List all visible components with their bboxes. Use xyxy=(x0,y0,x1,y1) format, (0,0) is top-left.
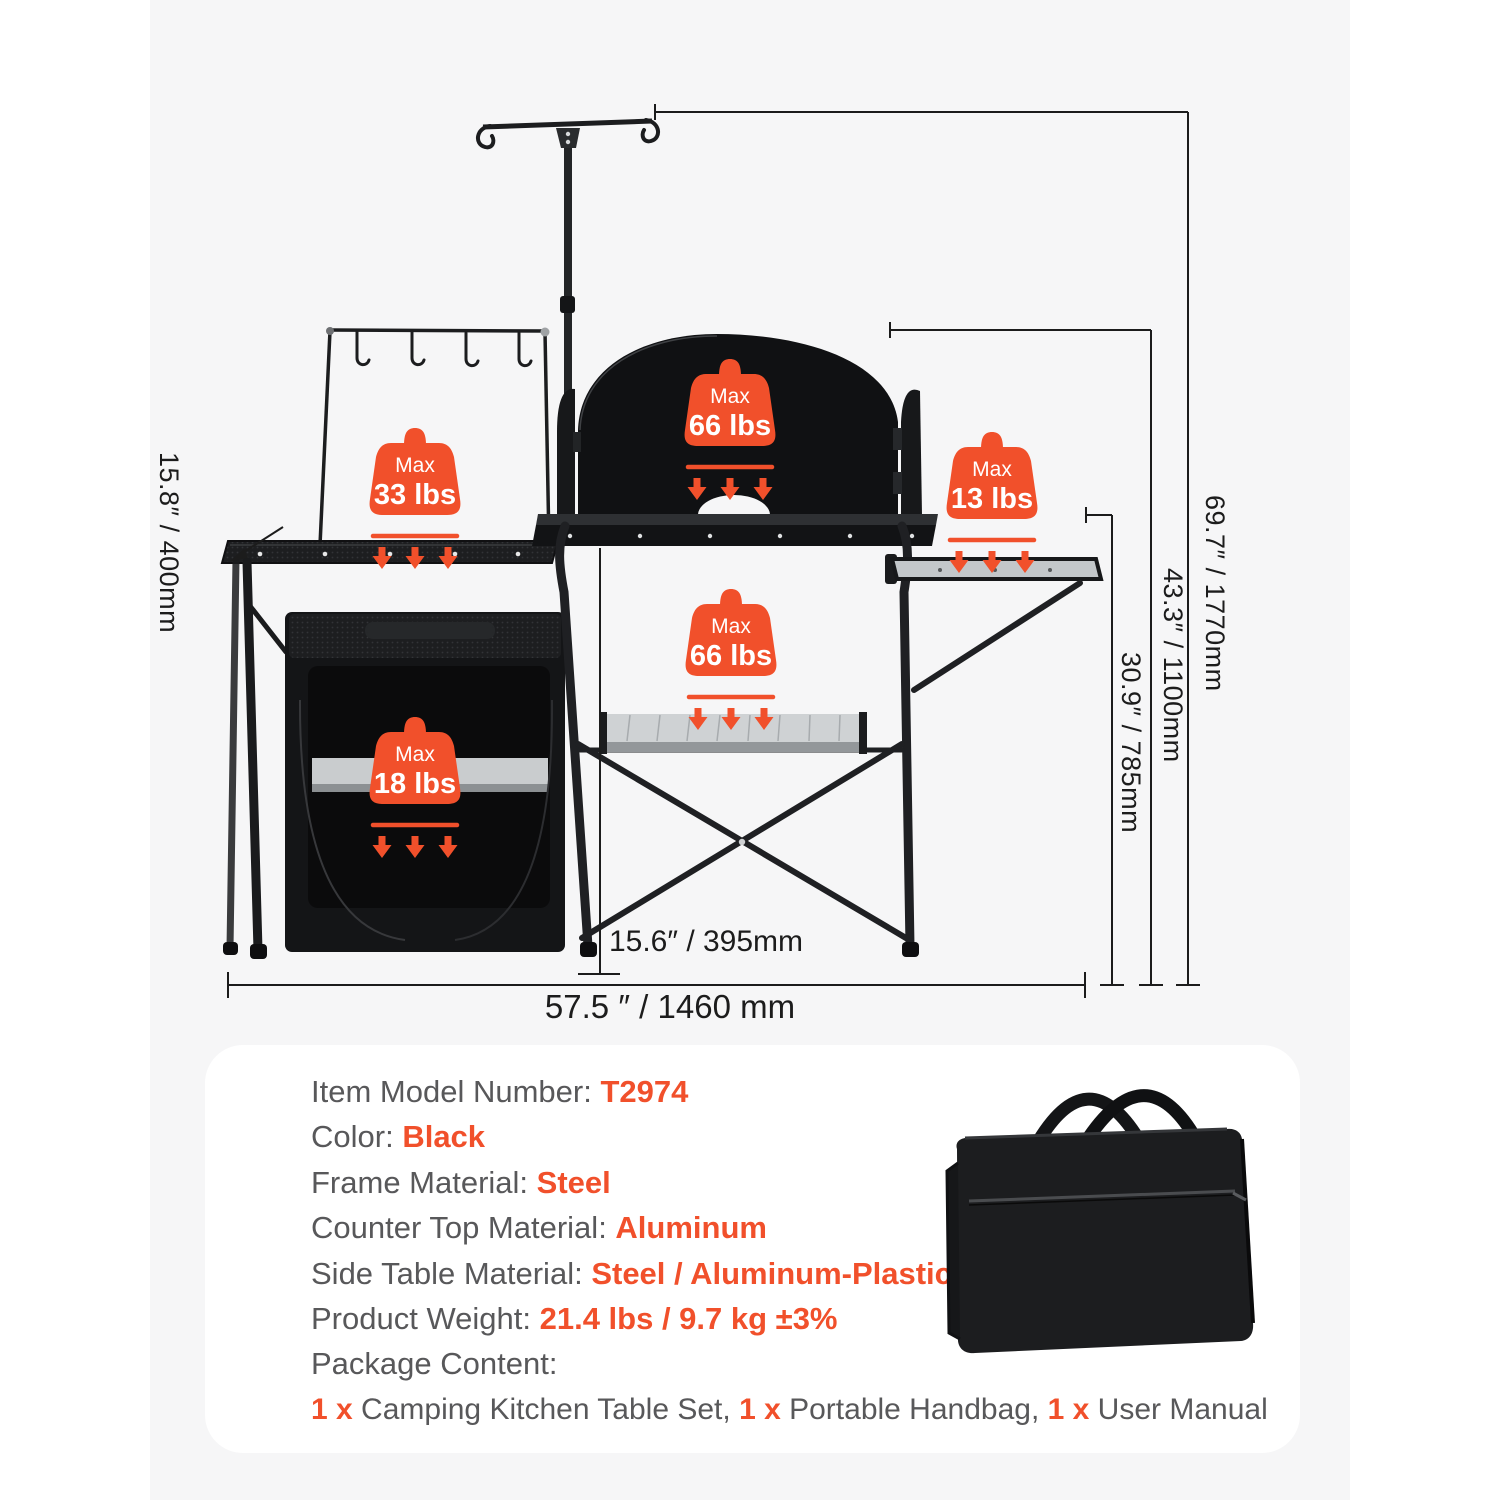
product-illustration: Max 33 lbs Max 66 lbs Max 13 lbs Max 66 … xyxy=(150,0,1350,1045)
svg-text:66 lbs: 66 lbs xyxy=(689,410,771,442)
svg-text:Max: Max xyxy=(395,454,435,477)
windscreen-right-wing xyxy=(901,390,922,515)
max-weight-badge-33lbs: Max 33 lbs xyxy=(370,428,461,569)
weight-icon xyxy=(404,428,426,445)
svg-text:66 lbs: 66 lbs xyxy=(690,640,772,672)
spec-card: Item Model Number: T2974 Color: Black Fr… xyxy=(205,1045,1300,1453)
max-weight-badge-18lbs: Max 18 lbs xyxy=(370,717,461,858)
product-infographic: Max 33 lbs Max 66 lbs Max 13 lbs Max 66 … xyxy=(0,0,1500,1500)
carry-bag-illustration xyxy=(935,1053,1295,1388)
svg-text:Max: Max xyxy=(710,385,750,408)
max-weight-badge-66lbs-windscreen: Max 66 lbs xyxy=(685,359,776,500)
max-weight-badge-13lbs: Max 13 lbs xyxy=(947,432,1038,573)
portable-handbag xyxy=(947,1096,1253,1353)
dim-label-overall-width: 57.5 ″ / 1460 mm xyxy=(545,988,795,1025)
dim-label-tabletop-height: 30.9″ / 785mm xyxy=(1116,652,1146,833)
svg-text:18 lbs: 18 lbs xyxy=(374,768,456,800)
svg-text:Max: Max xyxy=(711,615,751,638)
package-content-line: 1 x Camping Kitchen Table Set, 1 x Porta… xyxy=(311,1387,1268,1432)
svg-text:Max: Max xyxy=(972,458,1012,481)
weight-icon xyxy=(720,589,742,606)
max-weight-badge-66lbs-shelf: Max 66 lbs xyxy=(686,589,777,730)
dim-label-table-depth: 15.6″ / 395mm xyxy=(609,925,803,958)
svg-text:13 lbs: 13 lbs xyxy=(951,483,1033,515)
svg-text:33 lbs: 33 lbs xyxy=(374,479,456,511)
svg-text:Max: Max xyxy=(395,743,435,766)
dim-label-overall-height: 69.7″ / 1770mm xyxy=(1200,495,1230,692)
weight-icon xyxy=(981,432,1003,449)
s-hook-icon xyxy=(357,332,531,366)
dim-label-left-table-depth: 15.8″ / 400mm xyxy=(154,452,184,633)
down-arrow-icon xyxy=(373,547,458,569)
right-side-table xyxy=(885,554,1101,690)
dim-label-windscreen-height: 43.3″ / 1100mm xyxy=(1158,568,1188,763)
windscreen-left-wing xyxy=(557,389,575,515)
